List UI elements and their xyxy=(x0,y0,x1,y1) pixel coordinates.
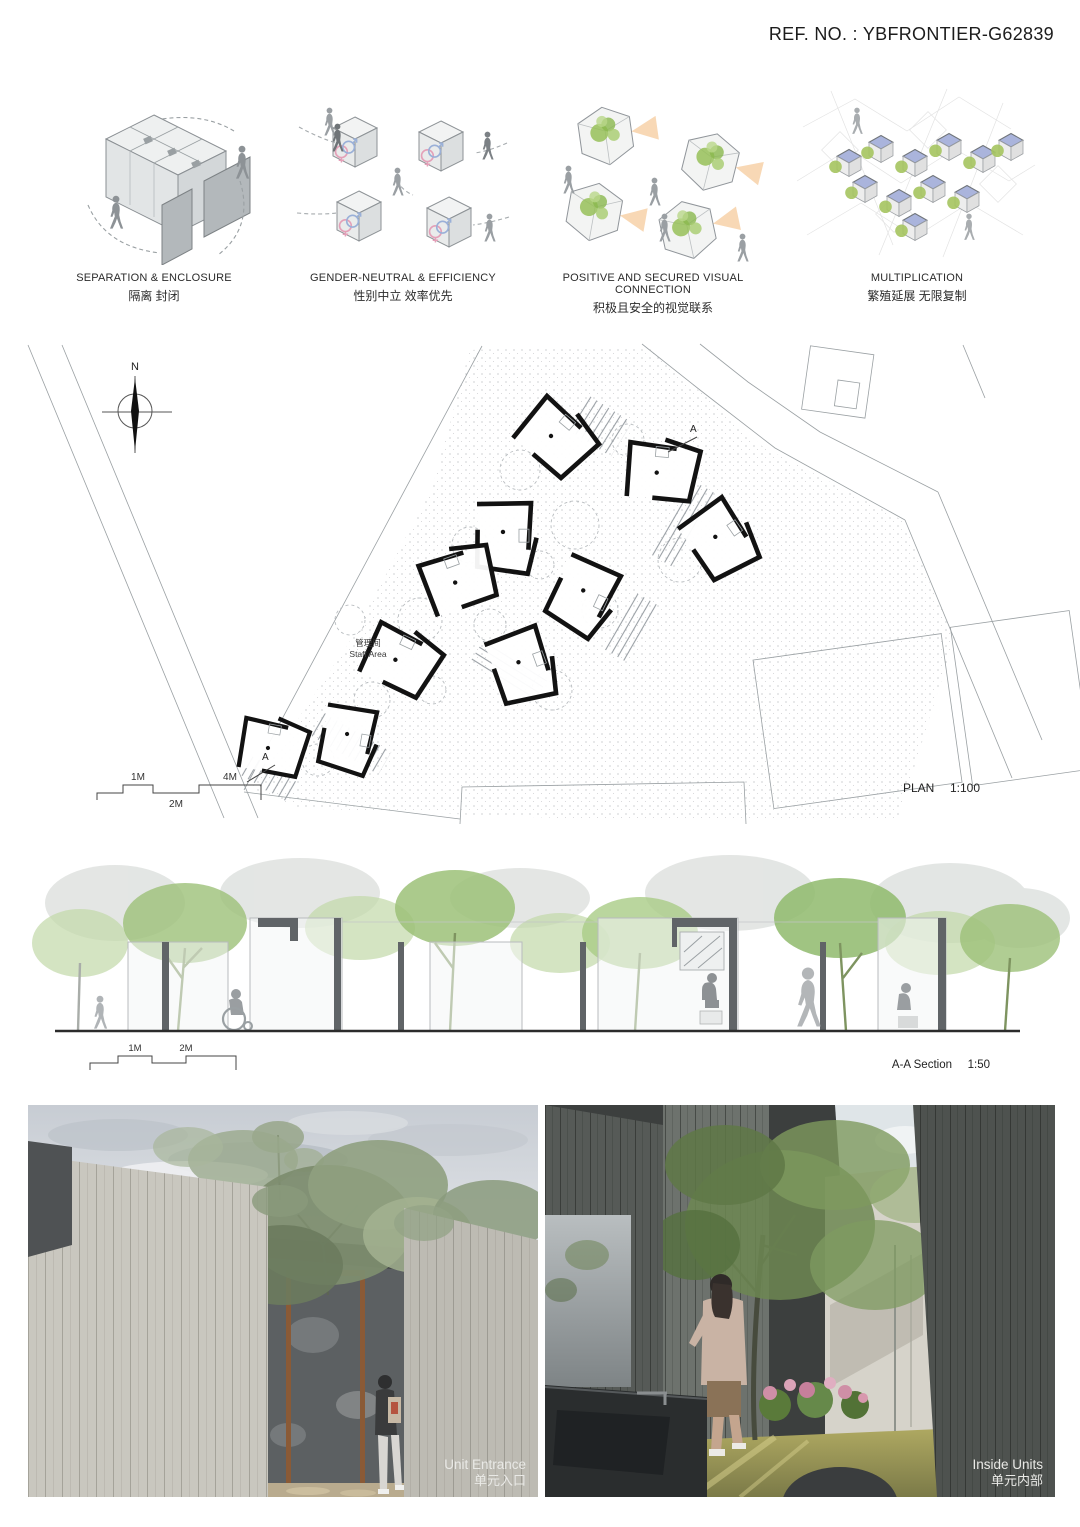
render-title: Unit Entrance xyxy=(444,1456,526,1474)
planted-units xyxy=(564,100,768,264)
svg-text:1:100: 1:100 xyxy=(950,781,980,795)
multiplication-diagram xyxy=(797,85,1037,270)
concept-subtitle: 隔离 封闭 xyxy=(40,287,268,304)
section-title: A-A Section 1:50 xyxy=(892,1059,990,1071)
unit-entrance-scene xyxy=(28,1105,538,1497)
render-caption: Unit Entrance 单元入口 xyxy=(444,1456,526,1490)
section-scale-bar: 1M 2M xyxy=(90,1043,236,1070)
svg-text:N: N xyxy=(131,361,139,373)
foliage-overlap xyxy=(252,1185,308,1217)
right-concrete-wall xyxy=(404,1208,538,1497)
separation-enclosure-diagram xyxy=(44,85,264,265)
left-concrete-wall xyxy=(28,1141,268,1497)
presentation-board: REF. NO. : YBFRONTIER-G62839 xyxy=(0,0,1080,1527)
svg-text:Staff Area: Staff Area xyxy=(349,649,386,659)
plan-scale-bar: 1M 2M 4M xyxy=(97,772,261,810)
svg-text:1:50: 1:50 xyxy=(968,1059,990,1071)
section-drawing: 1M 2M A-A Section 1:50 xyxy=(0,848,1080,1083)
concept-multiplication: MULTIPLICATION 繁殖延展 无限复制 xyxy=(788,85,1046,304)
concept-title: MULTIPLICATION xyxy=(788,272,1046,284)
inside-units-scene xyxy=(545,1105,1055,1497)
site-plan: 管理间 Staff Area A A N 1M 2M 4M PLAN 1:100 xyxy=(0,340,1080,825)
svg-text:PLAN: PLAN xyxy=(903,781,934,795)
gender-cubes xyxy=(333,117,471,247)
ref-number: REF. NO. : YBFRONTIER-G62839 xyxy=(769,24,1054,45)
concept-gender-neutral: GENDER-NEUTRAL & EFFICIENCY 性别中立 效率优先 xyxy=(283,85,523,304)
concept-subtitle: 性别中立 效率优先 xyxy=(283,287,523,304)
circulation-arrows xyxy=(297,127,509,225)
visual-connection-diagram xyxy=(538,85,768,270)
svg-text:2M: 2M xyxy=(179,1043,192,1054)
svg-text:1M: 1M xyxy=(128,1043,141,1054)
render-subtitle: 单元入口 xyxy=(444,1473,526,1490)
svg-text:A: A xyxy=(690,424,697,435)
concept-visual-connection: POSITIVE AND SECURED VISUAL CONNECTION 积… xyxy=(533,85,773,316)
svg-text:4M: 4M xyxy=(223,772,237,783)
svg-text:管理间: 管理间 xyxy=(355,638,381,648)
foliage-overlap xyxy=(394,1205,454,1241)
plan-title: PLAN 1:100 xyxy=(903,781,980,795)
gender-neutral-diagram xyxy=(293,85,513,265)
render-inside-units: Inside Units 单元内部 xyxy=(545,1105,1055,1497)
svg-text:1M: 1M xyxy=(131,772,145,783)
concept-title: POSITIVE AND SECURED VISUAL CONNECTION xyxy=(533,272,773,296)
svg-text:2M: 2M xyxy=(169,799,183,810)
render-caption: Inside Units 单元内部 xyxy=(972,1456,1043,1490)
concept-title: GENDER-NEUTRAL & EFFICIENCY xyxy=(283,272,523,284)
right-wall xyxy=(913,1105,1055,1497)
render-title: Inside Units xyxy=(972,1456,1043,1474)
svg-text:A: A xyxy=(262,752,269,763)
concept-subtitle: 积极且安全的视觉联系 xyxy=(533,299,773,316)
concept-subtitle: 繁殖延展 无限复制 xyxy=(788,287,1046,304)
render-unit-entrance: Unit Entrance 单元入口 xyxy=(28,1105,538,1497)
concept-separation: SEPARATION & ENCLOSURE 隔离 封闭 xyxy=(40,85,268,304)
north-arrow: N xyxy=(102,361,172,453)
render-subtitle: 单元内部 xyxy=(972,1473,1043,1490)
concept-title: SEPARATION & ENCLOSURE xyxy=(40,272,268,284)
svg-text:A-A Section: A-A Section xyxy=(892,1059,952,1071)
